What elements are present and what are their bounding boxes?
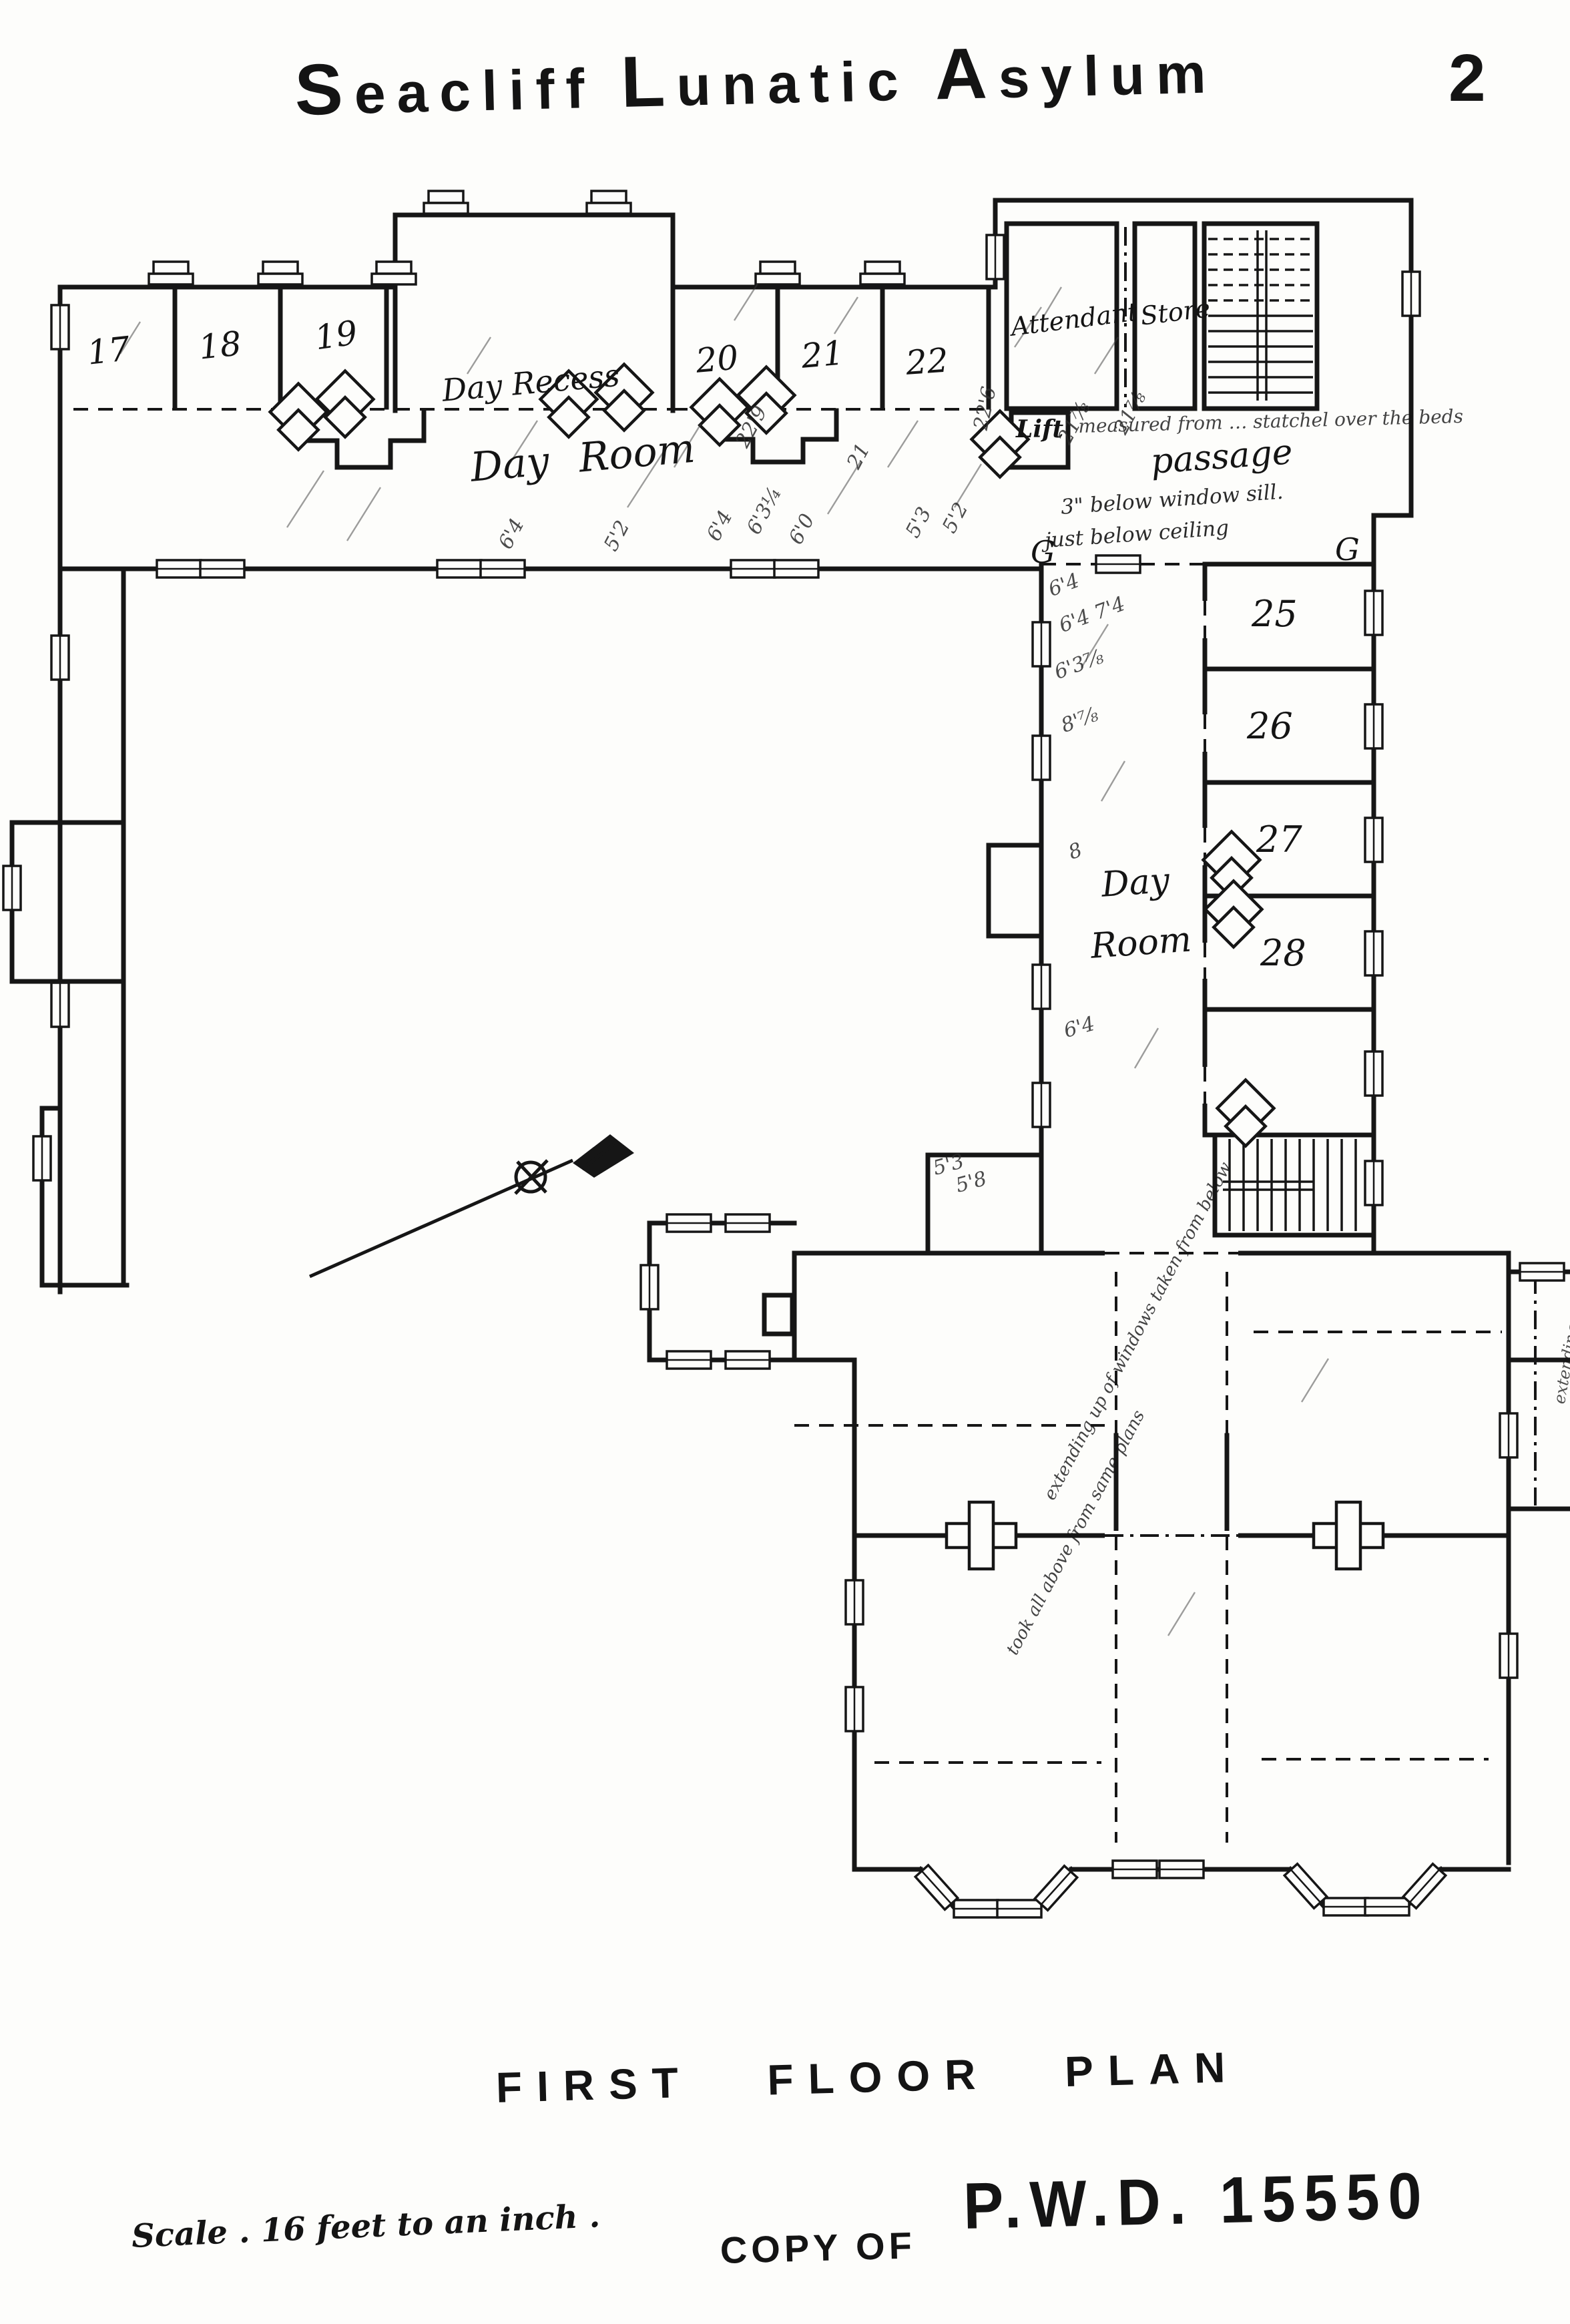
wing-day-room-label-line1: Day bbox=[1100, 861, 1171, 905]
pwd-number-stamp: P.W.D. 15550 bbox=[963, 2158, 1431, 2244]
room-label-26: 26 bbox=[1247, 705, 1293, 747]
room-label-17: 17 bbox=[85, 329, 132, 372]
title-word-2: Lunatic bbox=[620, 33, 910, 124]
room-label-20: 20 bbox=[694, 338, 740, 380]
room-label-22: 22 bbox=[904, 341, 950, 383]
window-symbols bbox=[3, 235, 1564, 1917]
section-mark-g-right: G bbox=[1335, 531, 1360, 567]
scanned-floor-plan-sheet: SeacliffLunaticAsylum 2 17 18 19 20 21 2… bbox=[0, 0, 1570, 2324]
title-word-1: Seacliff bbox=[294, 41, 597, 132]
room-label-28: 28 bbox=[1260, 932, 1306, 974]
staircase-upper bbox=[1208, 230, 1313, 401]
room-label-18: 18 bbox=[197, 324, 243, 367]
chimney-stacks bbox=[149, 191, 904, 284]
room-label-21: 21 bbox=[800, 333, 845, 375]
wing-day-room-label-line2: Room bbox=[1089, 919, 1193, 966]
room-label-19: 19 bbox=[312, 313, 360, 357]
copy-of-label: COPY OF bbox=[720, 2223, 917, 2272]
room-label-25: 25 bbox=[1252, 593, 1298, 635]
page-number: 2 bbox=[1449, 40, 1486, 117]
wall-opening-gaps bbox=[1105, 601, 1238, 1540]
door-symbols bbox=[266, 365, 1279, 1146]
north-arrow bbox=[310, 1134, 634, 1276]
title-word-3: Asylum bbox=[934, 25, 1218, 115]
room-label-27: 27 bbox=[1256, 819, 1302, 861]
walls bbox=[12, 200, 1570, 1909]
staircase-lower bbox=[1223, 1139, 1356, 1231]
section-mark-g-left: G bbox=[1031, 534, 1055, 570]
